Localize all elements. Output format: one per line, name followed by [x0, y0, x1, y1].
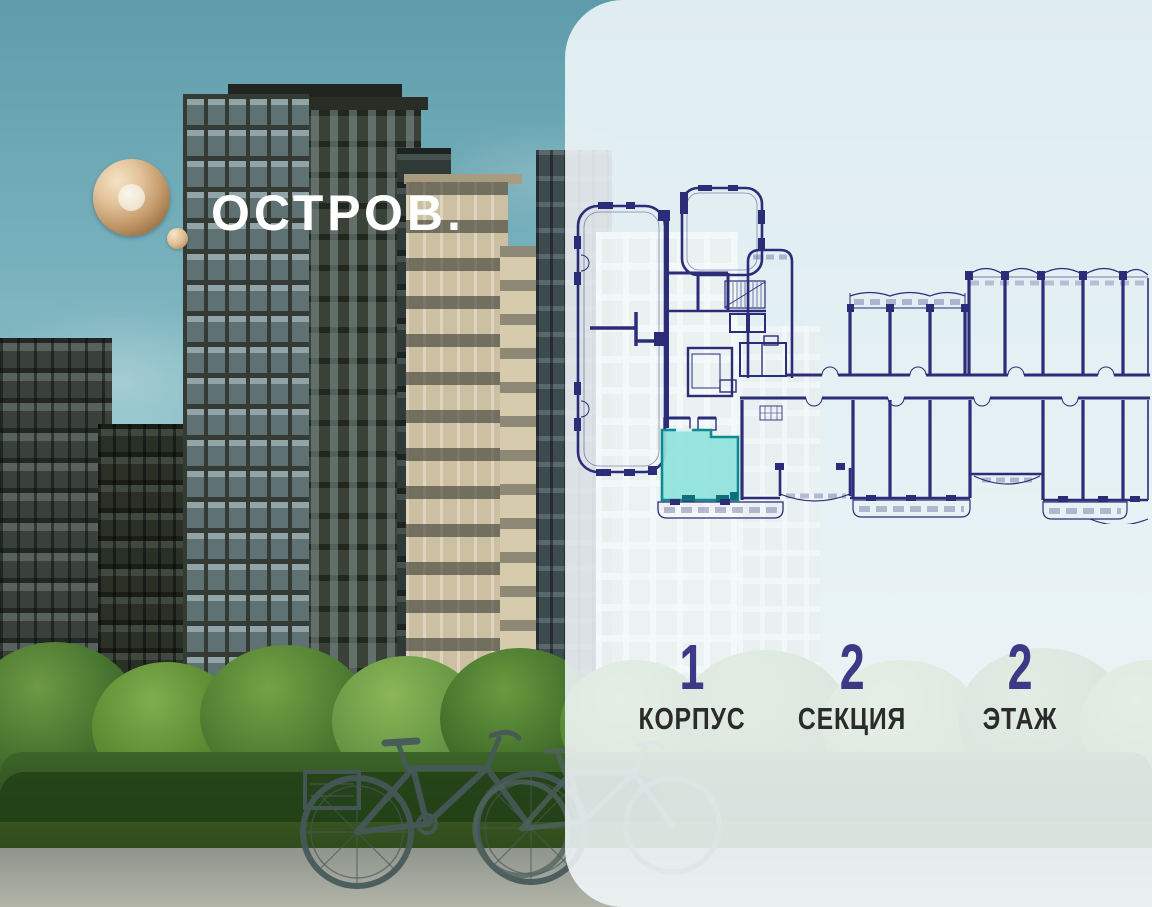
stat-floor: 2 ЭТАЖ: [973, 636, 1066, 736]
unit-location-stats: 1 КОРПУС 2 СЕКЦИЯ 2 ЭТАЖ: [565, 636, 1152, 766]
stat-section: 2 СЕКЦИЯ: [784, 636, 919, 736]
selected-unit[interactable]: [662, 430, 738, 500]
page: ОСТРОВ.: [0, 0, 1152, 907]
stat-building-value: 1: [680, 636, 705, 698]
stat-section-label: СЕКЦИЯ: [798, 702, 906, 736]
stat-floor-label: ЭТАЖ: [983, 702, 1058, 736]
floorplan: [570, 178, 1150, 524]
ostrov-ring-icon: [93, 159, 170, 236]
plan-lower-units: [742, 400, 1148, 524]
ostrov-logo-text: ОСТРОВ.: [211, 184, 465, 242]
stat-section-value: 2: [840, 636, 865, 698]
plan-selected-unit-group: [662, 430, 738, 502]
plan-upper-units: [748, 250, 1148, 378]
stat-building-label: КОРПУС: [639, 702, 746, 736]
plan-left-building: [574, 202, 670, 476]
floorplan-panel: 1 КОРПУС 2 СЕКЦИЯ 2 ЭТАЖ: [565, 0, 1152, 907]
stat-floor-value: 2: [1008, 636, 1033, 698]
plan-central-core: [664, 185, 786, 430]
stat-building: 1 КОРПУС: [625, 636, 759, 736]
plan-balcony-selected: [658, 499, 783, 518]
plan-corridor: [740, 367, 1150, 406]
ostrov-dot-icon: [167, 228, 188, 249]
ostrov-logo: ОСТРОВ.: [0, 0, 565, 300]
